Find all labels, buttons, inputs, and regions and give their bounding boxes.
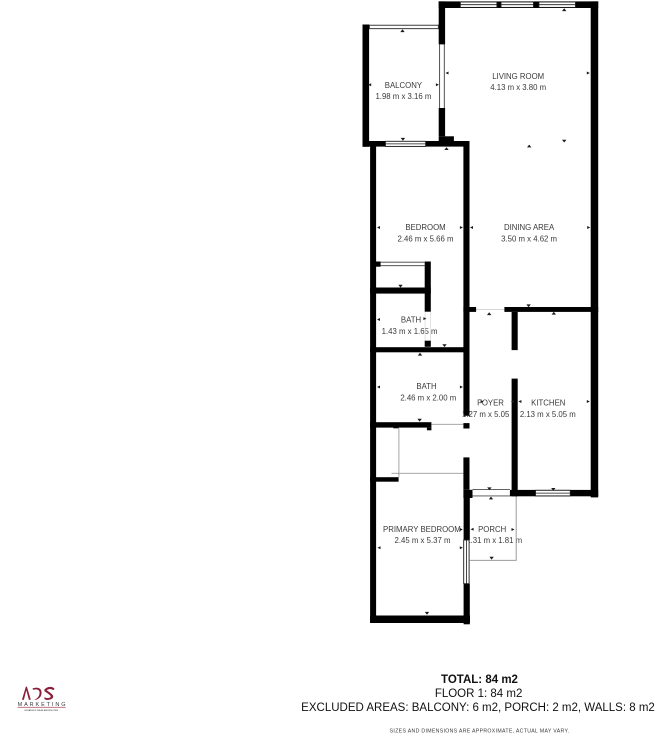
svg-text:3.50 m x 4.62 m: 3.50 m x 4.62 m xyxy=(501,234,557,243)
svg-text:BALCONY: BALCONY xyxy=(385,81,423,90)
svg-text:2.45 m x 5.37 m: 2.45 m x 5.37 m xyxy=(395,536,451,545)
svg-text:SIZES AND DIMENSIONS ARE APPRO: SIZES AND DIMENSIONS ARE APPROXIMATE, AC… xyxy=(390,729,570,735)
svg-text:LIVING ROOM: LIVING ROOM xyxy=(492,72,544,81)
svg-text:BATH: BATH xyxy=(416,382,436,391)
svg-text:FLOOR 1: 84 m2: FLOOR 1: 84 m2 xyxy=(435,688,523,700)
svg-text:TOTAL: 84 m2: TOTAL: 84 m2 xyxy=(441,674,518,686)
svg-text:EXCLUDED AREAS: BALCONY: 6 m2,: EXCLUDED AREAS: BALCONY: 6 m2, PORCH: 2 … xyxy=(301,702,655,714)
svg-text:DINING AREA: DINING AREA xyxy=(504,223,555,232)
svg-text:1.27 m x 5.05 m: 1.27 m x 5.05 m xyxy=(462,410,518,419)
svg-text:2.46 m x 5.66 m: 2.46 m x 5.66 m xyxy=(398,234,454,243)
svg-text:1.31 m x 1.81 m: 1.31 m x 1.81 m xyxy=(466,536,522,545)
svg-text:2.13 m x 5.05 m: 2.13 m x 5.05 m xyxy=(520,410,576,419)
svg-text:1.43 m x 1.65 m: 1.43 m x 1.65 m xyxy=(382,327,438,336)
svg-text:2.46 m x 2.00 m: 2.46 m x 2.00 m xyxy=(400,393,456,402)
svg-text:PORCH: PORCH xyxy=(478,525,506,534)
svg-text:MARKETING: MARKETING xyxy=(18,702,68,708)
svg-text:4.13 m x 3.80 m: 4.13 m x 3.80 m xyxy=(490,83,546,92)
svg-text:FOYER: FOYER xyxy=(477,399,504,408)
svg-text:BEDROOM: BEDROOM xyxy=(405,223,445,232)
svg-text:BATH: BATH xyxy=(401,316,421,325)
svg-text:1.98 m x 3.16 m: 1.98 m x 3.16 m xyxy=(375,92,431,101)
svg-text:PRIMARY BEDROOM: PRIMARY BEDROOM xyxy=(383,525,461,534)
svg-text:KITCHEN: KITCHEN xyxy=(531,399,565,408)
